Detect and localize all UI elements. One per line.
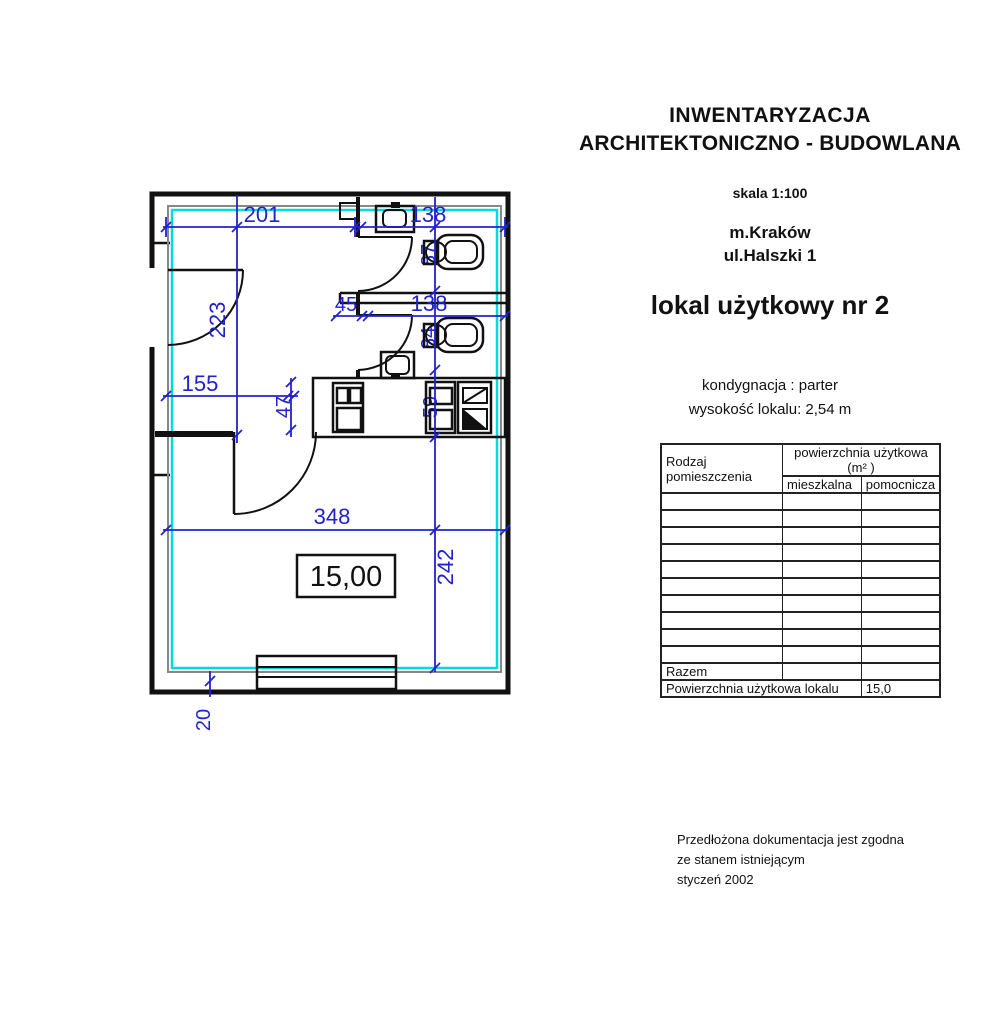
dim-top-left: 201 bbox=[244, 202, 281, 227]
table-row bbox=[661, 510, 940, 527]
dim-mid-small: 45 bbox=[335, 294, 357, 316]
note-line2: ze stanem istniejącym bbox=[677, 850, 904, 870]
washbasin-icon bbox=[381, 352, 414, 379]
dim-top-right: 138 bbox=[410, 202, 447, 227]
unit-title: lokal użytkowy nr 2 bbox=[570, 290, 970, 321]
room-door-arc bbox=[234, 432, 316, 514]
height-label: wysokość lokalu: 2,54 m bbox=[570, 401, 970, 418]
wc1-door-arc bbox=[358, 237, 412, 291]
subheader-residential: mieszkalna bbox=[783, 476, 862, 493]
dim-room-height: 242 bbox=[433, 549, 458, 586]
room-area-label: 15,00 bbox=[297, 555, 395, 597]
fridge-icon bbox=[458, 382, 491, 433]
note-line1: Przedłożona dokumentacja jest zgodna bbox=[677, 830, 904, 850]
table-row bbox=[661, 629, 940, 646]
inventory-sheet: 87 84 59 bbox=[0, 0, 982, 1024]
doc-title-line2: ARCHITEKTONICZNO - BUDOWLANA bbox=[570, 132, 970, 156]
dim-hall-width: 155 bbox=[182, 371, 219, 396]
street-label: ul.Halszki 1 bbox=[570, 246, 970, 266]
header-usable-area: powierzchnia użytkowa (m² ) bbox=[783, 444, 941, 476]
header-room-type: Rodzaj pomieszczenia bbox=[661, 444, 783, 493]
entrance-opening bbox=[145, 268, 158, 347]
dim-passage: 47 bbox=[273, 396, 295, 418]
dim-hall-height: 223 bbox=[205, 302, 230, 339]
scale-label: skala 1:100 bbox=[570, 185, 970, 201]
area-table: Rodzaj pomieszczenia powierzchnia użytko… bbox=[660, 443, 941, 698]
note-line3: styczeń 2002 bbox=[677, 870, 904, 890]
floor-plan-drawing: 87 84 59 bbox=[140, 185, 520, 760]
total-row: Powierzchnia użytkowa lokalu 15,0 bbox=[661, 680, 940, 697]
dim-room-width: 348 bbox=[314, 504, 351, 529]
table-row bbox=[661, 646, 940, 663]
dimension-labels: 201 138 223 45 138 155 47 348 242 20 bbox=[182, 202, 458, 731]
fixtures bbox=[257, 202, 505, 689]
header-room-type-line2: pomieszczenia bbox=[666, 469, 752, 484]
razem-label: Razem bbox=[661, 663, 783, 680]
table-row bbox=[661, 561, 940, 578]
table-row bbox=[661, 595, 940, 612]
total-value: 15,0 bbox=[861, 680, 940, 697]
storey-label: kondygnacja : parter bbox=[570, 377, 970, 394]
table-header-row: Rodzaj pomieszczenia powierzchnia użytko… bbox=[661, 444, 940, 476]
area-value: 15,00 bbox=[310, 561, 383, 593]
table-row bbox=[661, 493, 940, 510]
subheader-auxiliary: pomocnicza bbox=[861, 476, 940, 493]
city-label: m.Kraków bbox=[570, 223, 970, 243]
doc-title-line1: INWENTARYZACJA bbox=[570, 104, 970, 128]
table-row bbox=[661, 527, 940, 544]
floor-outline bbox=[168, 206, 501, 672]
conformity-note: Przedłożona dokumentacja jest zgodna ze … bbox=[677, 830, 904, 890]
table-row bbox=[661, 578, 940, 595]
total-label: Powierzchnia użytkowa lokalu bbox=[661, 680, 861, 697]
floor-outline-cyan bbox=[172, 210, 497, 668]
table-row bbox=[661, 544, 940, 561]
dim-mid-right: 138 bbox=[411, 291, 448, 316]
razem-row: Razem bbox=[661, 663, 940, 680]
dim-wall-thickness: 20 bbox=[193, 709, 215, 731]
header-room-type-line1: Rodzaj bbox=[666, 454, 706, 469]
table-row bbox=[661, 612, 940, 629]
title-block: INWENTARYZACJA ARCHITEKTONICZNO - BUDOWL… bbox=[570, 0, 970, 418]
